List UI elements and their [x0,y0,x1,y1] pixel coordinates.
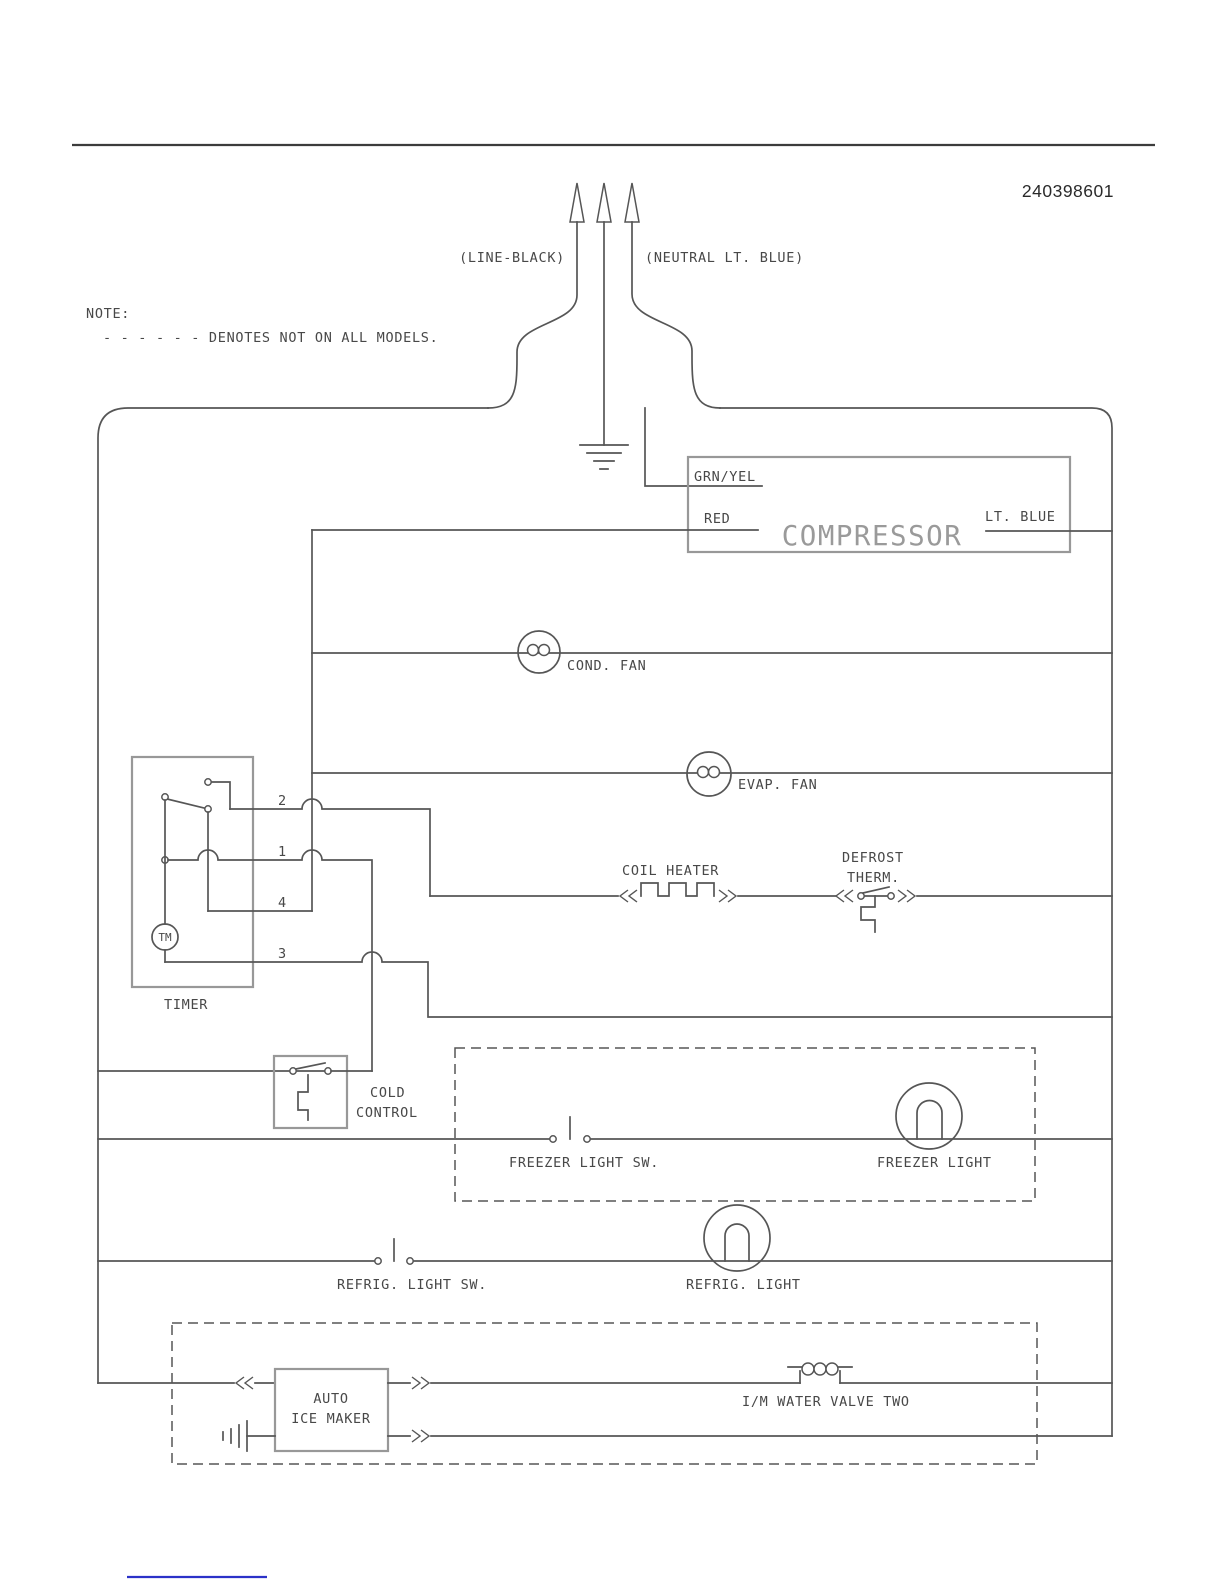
freezer-light-sw-label: FREEZER LIGHT SW. [509,1155,659,1171]
compressor-label: COMPRESSOR [782,520,963,552]
coil-heater-label: COIL HEATER [622,863,719,879]
cold-control-bimetal-icon [298,1075,308,1120]
defrost-switch-blade [863,887,889,893]
connector-icon [620,890,637,902]
wiring-diagram-page: 240398601 NOTE: - - - - - - DENOTES NOT … [0,0,1225,1585]
ice-maker-label-1: AUTO [313,1391,348,1407]
ground-arrow [580,183,628,469]
line-2 [230,799,430,896]
neutral-label: (NEUTRAL LT. BLUE) [645,250,804,266]
cond-fan-section: COND. FAN [312,631,1112,674]
line-black-arrow [488,183,584,408]
defrost-heater-section: COIL HEATER DEFROST THERM. [430,850,1112,932]
bulb-filament [725,1224,749,1261]
optional-box [455,1048,1035,1201]
connector-icon [898,890,915,902]
cold-control-section: COLD CONTROL [98,1056,418,1128]
refrig-light-section: REFRIG. LIGHT SW. REFRIG. LIGHT [98,1205,1112,1293]
connector-icon [719,890,736,902]
evap-fan-section: EVAP. FAN [312,752,1112,796]
defrost-label-1: DEFROST [842,850,904,866]
refrig-light-sw-label: REFRIG. LIGHT SW. [337,1277,487,1293]
line-1 [168,850,372,1071]
terminal-2-label: 2 [278,793,287,809]
refrig-light-label: REFRIG. LIGHT [686,1277,801,1293]
terminal-4-label: 4 [278,895,287,911]
water-valve-label: I/M WATER VALVE TWO [742,1394,910,1410]
ground-icon [223,1421,247,1451]
terminal-1-label: 1 [278,844,287,860]
cold-control-label-2: CONTROL [356,1105,418,1121]
grn-yel-label: GRN/YEL [694,469,756,485]
line-black-label: (LINE-BLACK) [459,250,565,266]
connector-icon [412,1430,429,1442]
terminal-3-label: 3 [278,946,287,962]
timer-label: TIMER [164,997,208,1013]
cold-control-blade [296,1063,325,1069]
connector-icon [412,1377,429,1389]
ice-maker-box [275,1369,388,1451]
cond-fan-label: COND. FAN [567,658,646,674]
note-body: - - - - - - DENOTES NOT ON ALL MODELS. [103,330,438,346]
connector-icon [836,890,853,902]
note-title: NOTE: [86,306,130,322]
ice-maker-section: AUTO ICE MAKER I/M WATER VALVE TWO [98,1323,1112,1464]
defrost-label-2: THERM. [847,870,900,886]
line-3 [165,952,1112,1017]
neutral-arrow [625,183,720,408]
ground-icon [580,445,628,469]
ice-maker-label-2: ICE MAKER [291,1411,371,1427]
cold-control-label-1: COLD [370,1085,405,1101]
timer-switch-blade [167,799,204,808]
coil-heater-icon [641,883,714,896]
wiring-diagram-svg: 240398601 NOTE: - - - - - - DENOTES NOT … [0,0,1225,1585]
timer-section: TM TIMER 2 1 4 3 [132,757,287,1013]
defrost-bimetal-icon [861,896,875,932]
lt-blue-label: LT. BLUE [985,509,1056,525]
freezer-light-label: FREEZER LIGHT [877,1155,992,1171]
timer-box [132,757,253,987]
evap-fan-label: EVAP. FAN [738,777,817,793]
connector-icon [236,1377,253,1389]
red-label: RED [704,511,730,527]
compressor-section: GRN/YEL RED COMPRESSOR LT. BLUE [312,408,1112,552]
bulb-filament [917,1101,942,1140]
tm-label: TM [158,931,172,944]
part-number: 240398601 [1022,181,1114,201]
